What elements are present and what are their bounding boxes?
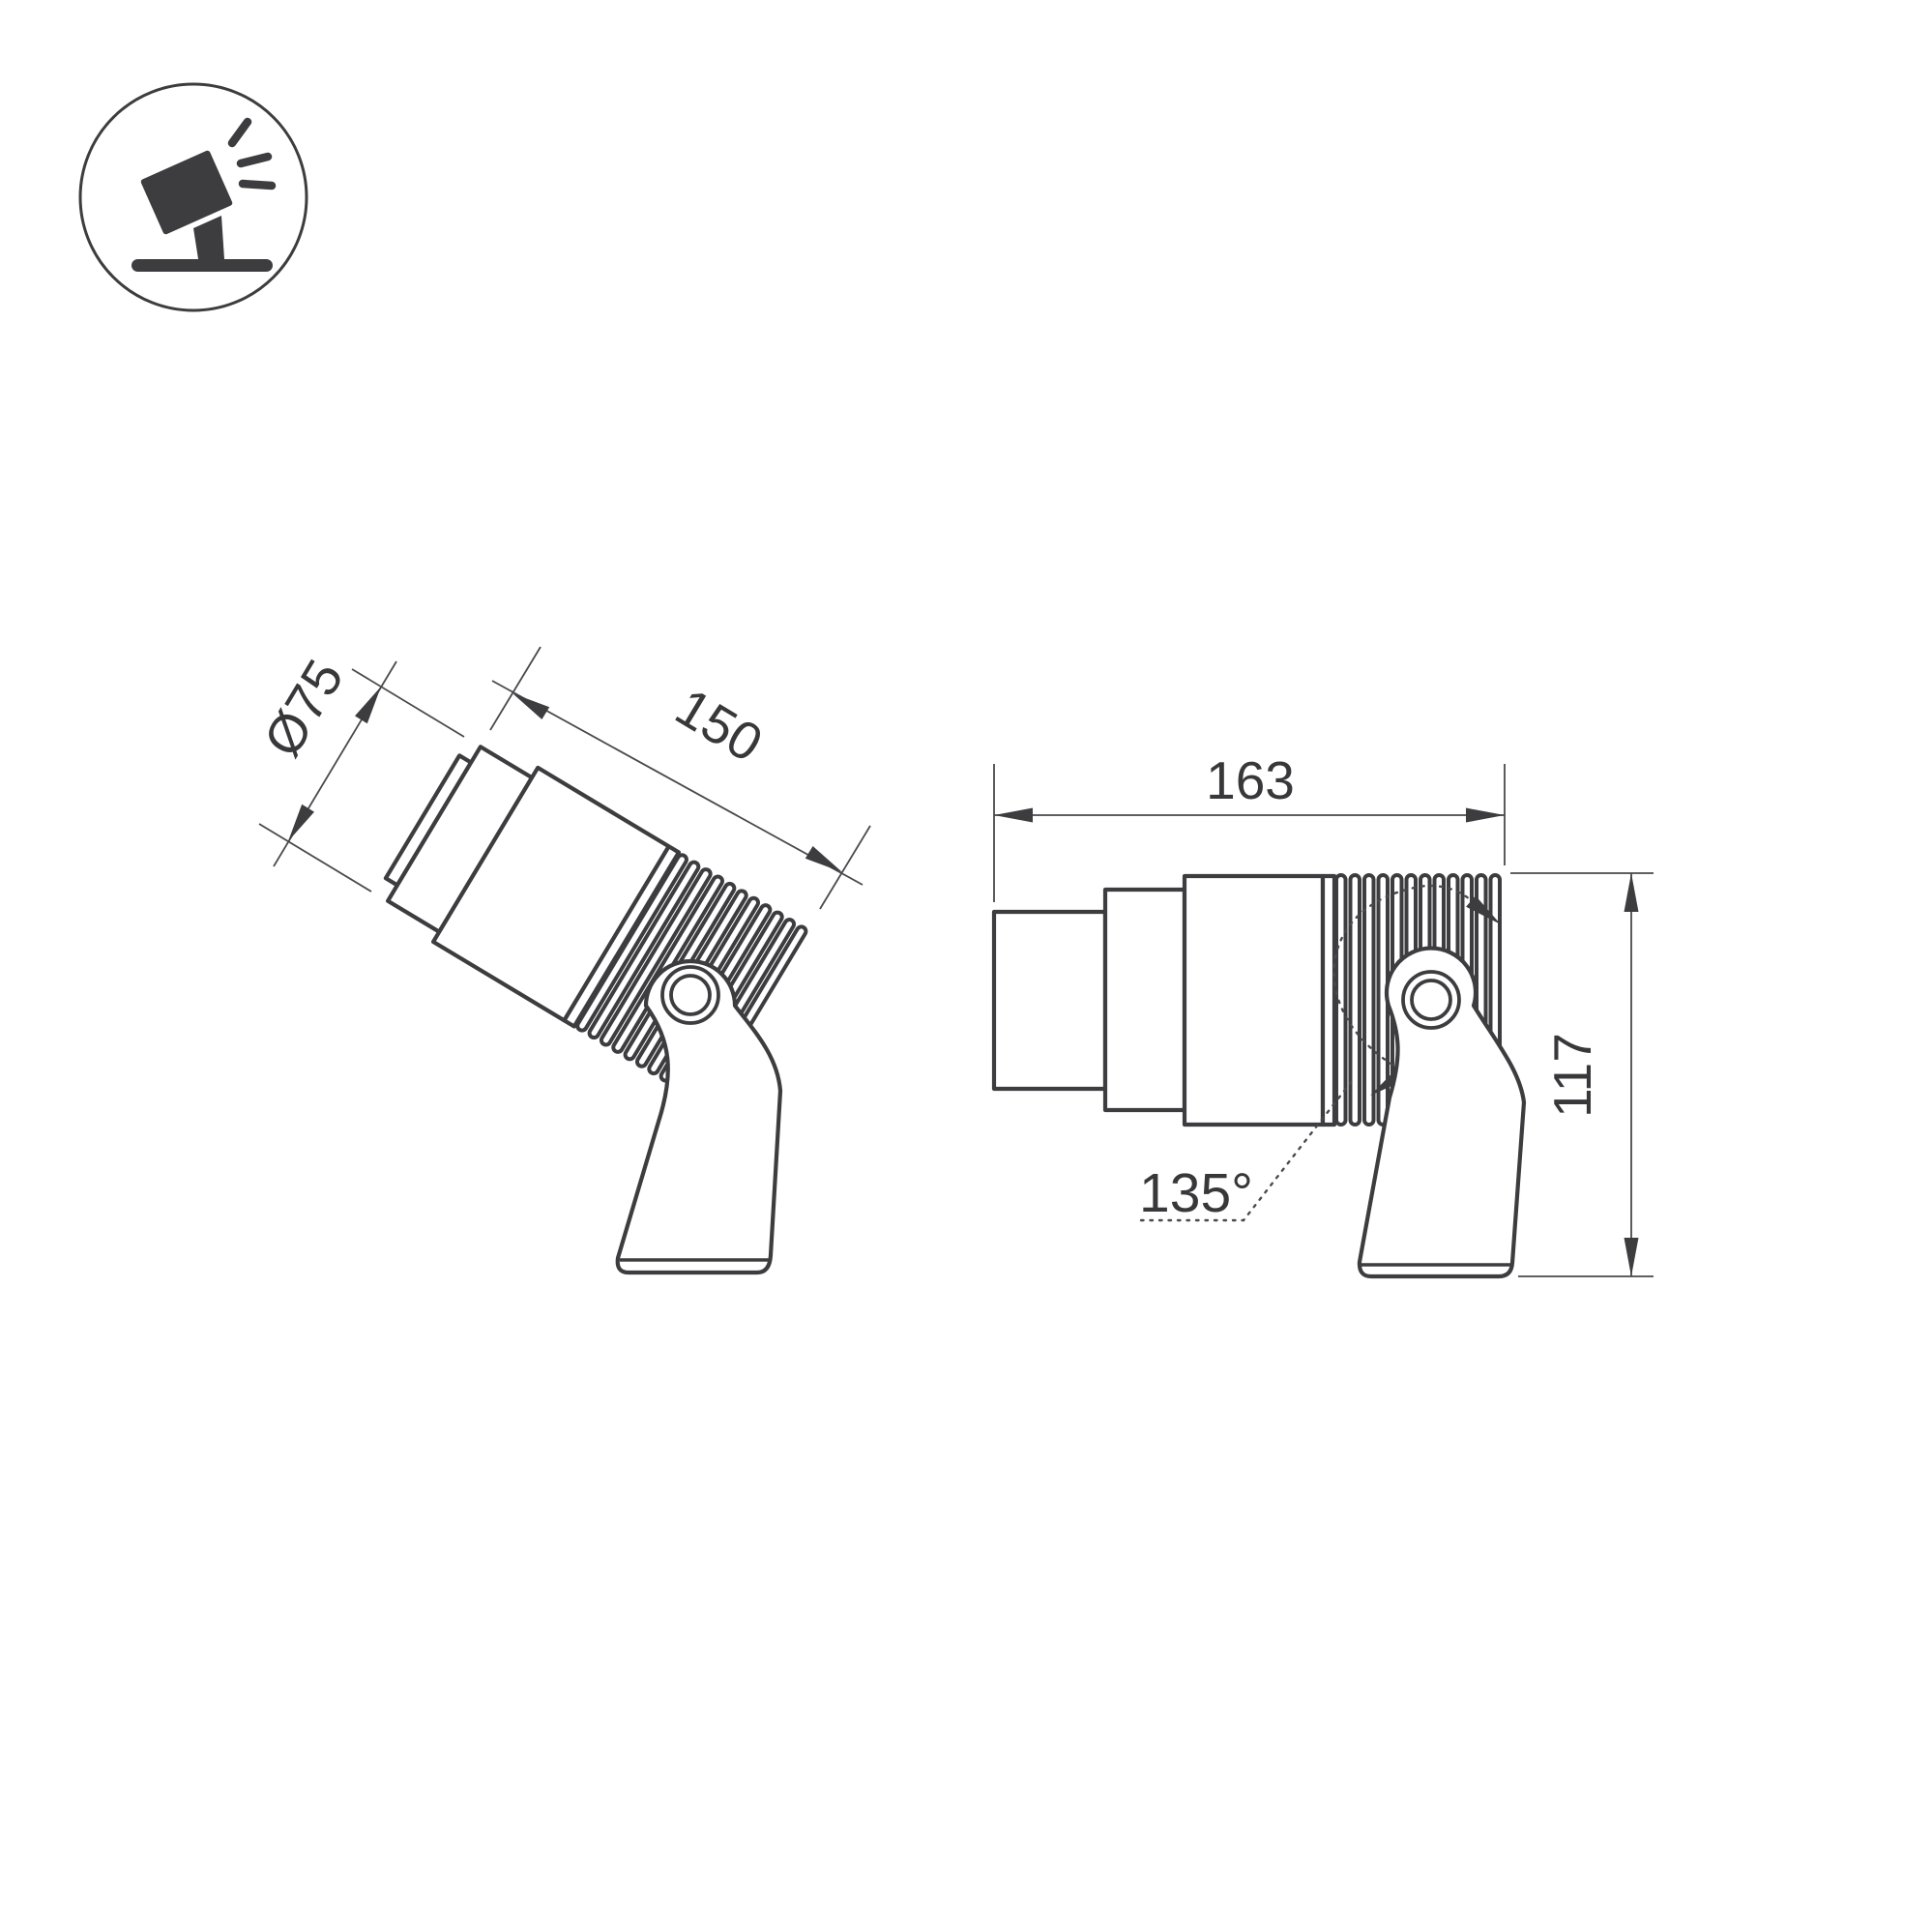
height-label: 117 [1542, 1033, 1602, 1118]
diameter-label: Ø75 [251, 650, 355, 767]
technical-drawing-canvas: Ø75 150 [0, 0, 1932, 1932]
light-rays-icon [232, 122, 272, 186]
height-dimension: 117 [1510, 873, 1654, 1276]
rotation-angle-label: 135° [1139, 1162, 1253, 1224]
tilted-view: Ø75 150 [251, 647, 870, 1273]
side-view: 135° 163 [994, 750, 1654, 1276]
spotlight-base-icon [132, 259, 273, 272]
main-housing [1185, 876, 1323, 1125]
dimension-drawing-page: Ø75 150 [0, 0, 1932, 1932]
spotlight-stem-icon [193, 216, 224, 259]
trim-band [1323, 876, 1334, 1125]
rear-ring [1105, 890, 1185, 1110]
length-label: 150 [665, 677, 773, 774]
total-length-label: 163 [1206, 750, 1295, 810]
rear-cap [994, 912, 1105, 1089]
product-pictogram [80, 84, 307, 310]
